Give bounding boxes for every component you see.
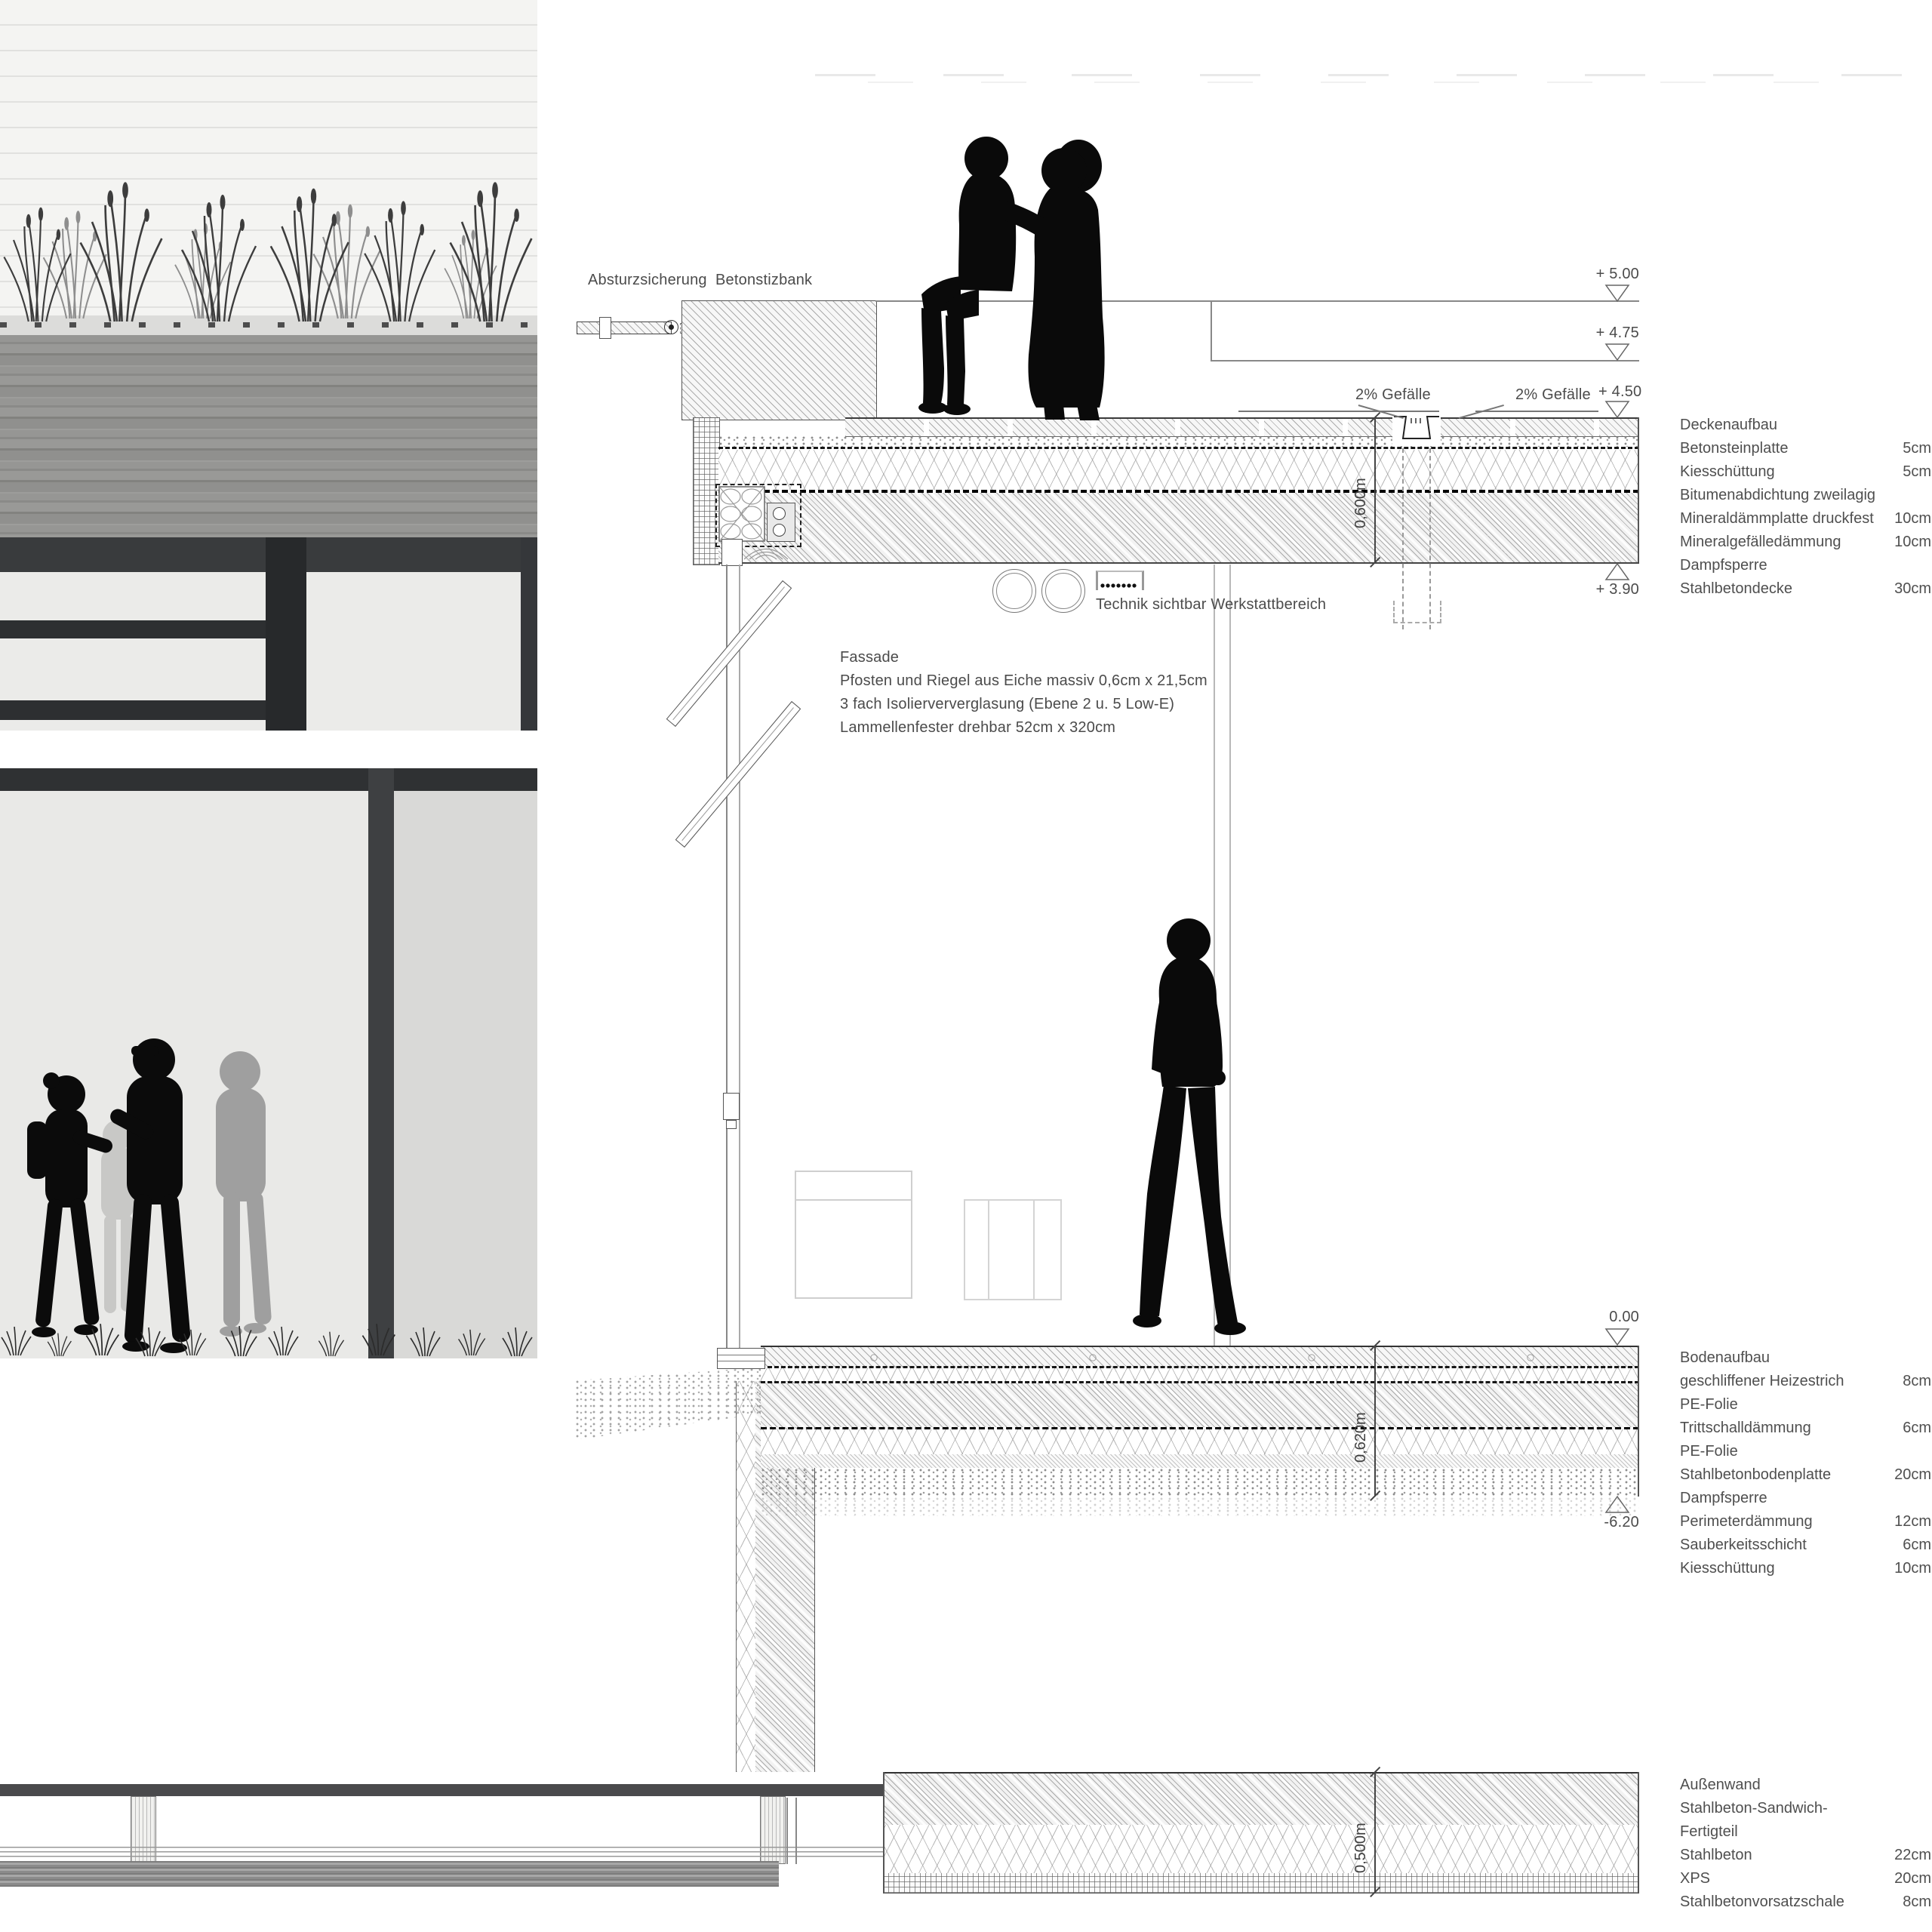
level-marker-475 (1604, 343, 1630, 361)
lamella-handle-2 (726, 1120, 737, 1129)
legend-row: Dampfsperre (1680, 1487, 1931, 1510)
roof-layer-insulation (718, 450, 1639, 490)
sill-line-2 (718, 1361, 764, 1361)
legend-label: geschliffener Heizestrich (1680, 1370, 1844, 1393)
dim-label-roof: 0,600m (1352, 478, 1370, 528)
legend-row: Stahlbeton22cm (1680, 1844, 1931, 1867)
legend-row: Fertigteil (1680, 1820, 1931, 1844)
legend-row: Bitumenabdichtung zweilagig (1680, 484, 1931, 507)
legend-label: Mineraldämmplatte druckfest (1680, 507, 1874, 531)
architectural-detail-sheet: Absturzsicherung Betonstizbank 2% Gefäll… (0, 0, 1932, 1932)
dim-line-roof (1374, 417, 1376, 563)
level-marker-620 (1604, 1496, 1630, 1513)
roof-layer-bitumen (718, 447, 1639, 449)
plan-connector-1 (786, 1798, 788, 1864)
level-label-500: + 5.00 (1556, 266, 1639, 283)
bracket-bolt-1 (773, 507, 786, 520)
dim-line-wall (1374, 1772, 1376, 1893)
legend-label: Trittschalldämmung (1680, 1417, 1811, 1440)
floor-layer-screed (761, 1346, 1639, 1367)
level-label-475: + 4.75 (1556, 325, 1639, 342)
legend-floor-title: Bodenaufbau (1680, 1346, 1931, 1370)
level-label-450: + 4.50 (1598, 383, 1641, 401)
slope-left-line (1238, 411, 1439, 412)
legend-label: Stahlbetonvorsatzschale (1680, 1890, 1844, 1914)
fassade-line-1: Pfosten und Riegel aus Eiche massiv 0,6c… (840, 669, 1207, 693)
legend-value: 20cm (1894, 1463, 1931, 1487)
legend-row: Sauberkeitsschicht6cm (1680, 1534, 1931, 1557)
legend-row: Mineralgefälledämmung10cm (1680, 531, 1931, 554)
lamella-window-2 (675, 701, 801, 848)
wall-layer-concrete (883, 1772, 1639, 1826)
legend-row: PE-Folie (1680, 1393, 1931, 1417)
level-marker-500 (1604, 285, 1630, 302)
legend-label: Mineralgefälledämmung (1680, 531, 1841, 554)
chair-outline (964, 1199, 1062, 1300)
legend-value: 12cm (1894, 1510, 1931, 1534)
roof-drain (1391, 414, 1442, 448)
legend-label: Dampfsperre (1680, 1487, 1767, 1510)
legend-value: 10cm (1894, 507, 1931, 531)
legend-value: 5cm (1903, 437, 1931, 460)
basement-wall-insulation (736, 1381, 757, 1772)
exterior-ground (575, 1367, 761, 1440)
fassade-line-2: 3 fach Isolierververglasung (Ebene 2 u. … (840, 693, 1207, 716)
legend-value: 10cm (1894, 531, 1931, 554)
plan-lamella-band (0, 1861, 779, 1887)
photo-window-edge (521, 537, 537, 731)
legend-row: XPS20cm (1680, 1867, 1931, 1890)
glass-line-outer (726, 565, 728, 1349)
legend-label: Stahlbeton-Sandwich- (1680, 1797, 1828, 1820)
photo-window-rail-1 (0, 620, 266, 638)
plan-glazing-lines (0, 1847, 888, 1857)
legend-row: Betonsteinplatte5cm (1680, 437, 1931, 460)
legend-row: geschliffener Heizestrich8cm (1680, 1370, 1931, 1393)
dim-label-floor: 0,620m (1352, 1412, 1370, 1463)
chair-line-1 (988, 1201, 989, 1299)
legend-row: Trittschalldämmung6cm (1680, 1417, 1931, 1440)
legend-floor: Bodenaufbau geschliffener Heizestrich8cm… (1680, 1346, 1931, 1580)
timber-grain-arcs (741, 539, 791, 560)
legend-label: PE-Folie (1680, 1440, 1738, 1463)
legend-row: Stahlbetonbodenplatte20cm (1680, 1463, 1931, 1487)
fassade-title: Fassade (840, 646, 1207, 669)
level-label-390: + 3.90 (1556, 581, 1639, 598)
fassade-note: Fassade Pfosten und Riegel aus Eiche mas… (840, 646, 1207, 740)
legend-row: Kiesschüttung10cm (1680, 1557, 1931, 1580)
slope-left-label: 2% Gefälle (1355, 386, 1431, 404)
photo-window-mullion (266, 537, 306, 731)
legend-wall-title: Außenwand (1680, 1774, 1931, 1797)
legend-value: 8cm (1903, 1890, 1931, 1914)
legend-row: Kiesschüttung5cm (1680, 460, 1931, 484)
glass-line-inner (739, 565, 740, 1349)
pipe-2 (1041, 569, 1085, 613)
ghost-lines (815, 74, 1902, 76)
glazing-head-profile (721, 539, 743, 566)
floor-layer-slab (761, 1383, 1639, 1427)
roof-layer-gravel (718, 435, 1639, 447)
floor-layer-blinding (761, 1454, 1639, 1468)
wall-left-edge (883, 1772, 884, 1893)
level-marker-450 (1604, 401, 1630, 418)
fassade-line-3: Lammellenfester drehbar 52cm x 320cm (840, 716, 1207, 740)
legend-value: 30cm (1894, 577, 1931, 601)
floor-layer-impact-insulation (761, 1368, 1639, 1381)
wall-layer-xps (883, 1825, 1639, 1873)
lamella-handle (723, 1093, 740, 1120)
railing-fixing-dot (669, 325, 674, 330)
level-label-000: 0.00 (1556, 1309, 1639, 1326)
roof-right-edge (1638, 417, 1639, 562)
floor-right-edge (1638, 1346, 1639, 1497)
legend-label: Sauberkeitsschicht (1680, 1534, 1807, 1557)
legend-label: Bitumenabdichtung zweilagig (1680, 484, 1875, 507)
legend-wall: Außenwand Stahlbeton-Sandwich- Fertigtei… (1680, 1774, 1931, 1914)
legend-value: 22cm (1894, 1844, 1931, 1867)
legend-row: Stahlbetondecke30cm (1680, 577, 1931, 601)
ground-stipple (761, 1497, 1639, 1516)
walking-man-silhouette (1103, 915, 1262, 1349)
legend-value: 8cm (1903, 1370, 1931, 1393)
legend-value: 20cm (1894, 1867, 1931, 1890)
legend-label: Perimeterdämmung (1680, 1510, 1813, 1534)
legend-label: Dampfsperre (1680, 554, 1767, 577)
level-marker-000 (1604, 1328, 1630, 1346)
betonsitzbank-label: Betonstizbank (715, 272, 812, 289)
legend-label: Fertigteil (1680, 1820, 1738, 1844)
plan-strip-dark-band (0, 1784, 884, 1796)
legend-label: Kiesschüttung (1680, 460, 1775, 484)
cable-tray (1096, 571, 1144, 590)
railing-clamp (599, 317, 611, 339)
slope-right-label: 2% Gefälle (1515, 386, 1591, 404)
legend-row: Stahlbetonvorsatzschale8cm (1680, 1890, 1931, 1914)
legend-label: XPS (1680, 1867, 1710, 1890)
bracket-bolt-2 (773, 524, 786, 537)
legend-label: Kiesschüttung (1680, 1557, 1775, 1580)
legend-row: Mineraldämmplatte druckfest10cm (1680, 507, 1931, 531)
sill-line-1 (718, 1355, 764, 1355)
legend-value: 5cm (1903, 460, 1931, 484)
plan-connector-2 (795, 1798, 797, 1864)
legend-label: PE-Folie (1680, 1393, 1738, 1417)
railing-anchor-bar (577, 321, 672, 334)
lamella-window-1 (666, 580, 792, 727)
wall-layer-facing-shell (883, 1873, 1639, 1894)
workbench-shelf-line (796, 1199, 911, 1201)
legend-row: PE-Folie (1680, 1440, 1931, 1463)
legend-roof-title: Deckenaufbau (1680, 414, 1931, 437)
legend-row: Dampfsperre (1680, 554, 1931, 577)
legend-label: Betonsteinplatte (1680, 437, 1788, 460)
level-marker-390 (1604, 563, 1630, 580)
pipe-1 (992, 569, 1036, 613)
dim-line-floor (1374, 1346, 1376, 1497)
dim-label-wall: 0,500m (1352, 1823, 1370, 1873)
level-line-475 (1211, 360, 1639, 361)
legend-row: Stahlbeton-Sandwich- (1680, 1797, 1931, 1820)
sitting-couple-silhouette (909, 127, 1177, 421)
ghost-lines-2 (868, 82, 1849, 83)
legend-value: 6cm (1903, 1534, 1931, 1557)
roof-layer-slab (718, 493, 1639, 564)
absturzsicherung-label: Absturzsicherung (588, 272, 707, 289)
timber-blocking (718, 486, 765, 542)
slope-right-line (1475, 411, 1598, 412)
cable-tray-dots (1100, 583, 1137, 589)
wall-right-edge (1638, 1772, 1639, 1893)
legend-label: Stahlbeton (1680, 1844, 1752, 1867)
floor-layer-gravel (761, 1468, 1639, 1497)
chair-line-2 (1033, 1201, 1035, 1299)
legend-label: Stahlbetonbodenplatte (1680, 1463, 1831, 1487)
sill-profile (717, 1348, 765, 1369)
level-step (1211, 300, 1212, 361)
legend-roof: Deckenaufbau Betonsteinplatte5cm Kiessch… (1680, 414, 1931, 601)
legend-label: Stahlbetondecke (1680, 577, 1792, 601)
legend-row: Perimeterdämmung12cm (1680, 1510, 1931, 1534)
legend-value: 10cm (1894, 1557, 1931, 1580)
photo-window-rail-2 (0, 700, 266, 720)
section-drawing: Absturzsicherung Betonstizbank 2% Gefäll… (0, 0, 1932, 1932)
technik-label: Technik sichtbar Werkstattbereich (1096, 596, 1326, 614)
concrete-bench (681, 300, 877, 420)
drain-body-dashed (1393, 601, 1441, 623)
workbench-outline (795, 1171, 912, 1299)
floor-layer-perimeter (761, 1429, 1639, 1454)
level-label-620: -6.20 (1556, 1514, 1639, 1531)
legend-value: 6cm (1903, 1417, 1931, 1440)
